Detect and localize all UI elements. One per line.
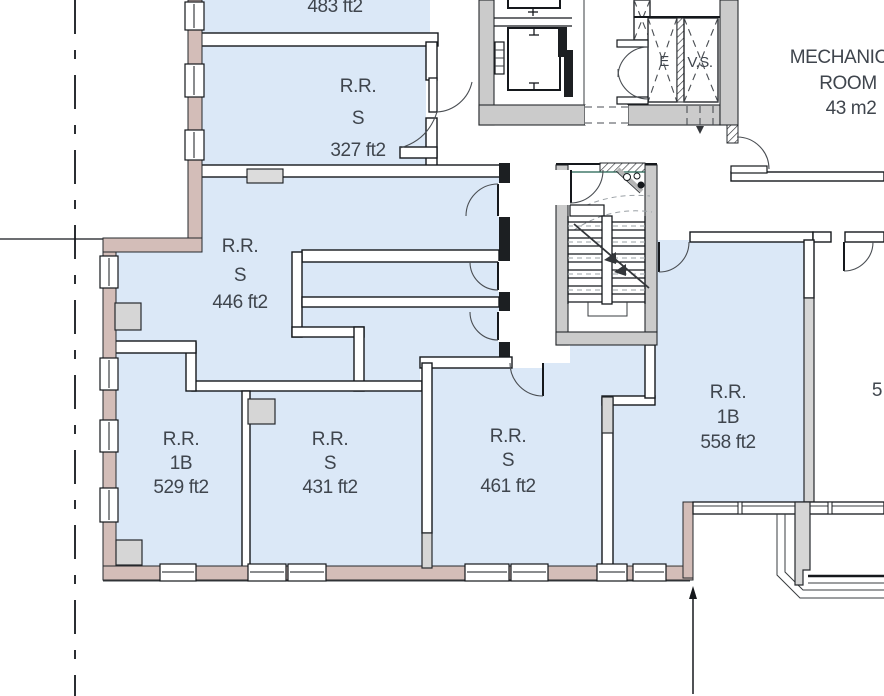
electrical-shaft-label: E: [659, 53, 669, 70]
column: [602, 397, 613, 433]
room-431-area-label: 431 ft2: [302, 477, 357, 498]
room-529-name: R.R.: [163, 429, 199, 450]
vent-shaft-label: V.S.: [687, 54, 712, 71]
room-558-name: R.R.: [710, 382, 746, 403]
fixture-icon: [638, 182, 645, 189]
window: [185, 130, 204, 160]
room-327-type: S: [352, 108, 364, 129]
room-461-area-label: 461 ft2: [480, 476, 535, 497]
room-558-type: 1B: [717, 407, 739, 428]
window: [597, 564, 627, 581]
room-558-area-label: 558 ft2: [700, 432, 755, 453]
elevator-car: [508, 28, 560, 90]
column: [116, 540, 142, 565]
window: [633, 564, 666, 581]
room-483-label: 483 ft2: [307, 0, 362, 17]
column: [422, 533, 432, 568]
property-line: [0, 0, 104, 696]
room-431-type: S: [324, 453, 336, 474]
column: [115, 303, 141, 330]
mechanical-room-area: 43 m2: [826, 98, 877, 119]
balcony: [693, 502, 884, 598]
balcony-column: [795, 502, 810, 585]
elevator-bank: [494, 0, 584, 105]
wall-column: [804, 298, 814, 502]
lobby-door-arc: [618, 69, 648, 99]
window: [100, 488, 118, 522]
window: [465, 564, 509, 581]
room-461-name: R.R.: [490, 426, 526, 447]
fixture-icon: [624, 174, 631, 181]
door-jamb-hatch: [727, 125, 738, 143]
room-461-type: S: [502, 450, 514, 471]
room-327-name: R.R.: [340, 76, 376, 97]
window: [185, 2, 204, 30]
service-shafts: [617, 0, 720, 104]
wall-fixture: [247, 169, 283, 183]
room-446-name: R.R.: [222, 236, 258, 257]
door-leaf: [429, 78, 437, 112]
room-431-name: R.R.: [312, 429, 348, 450]
window: [185, 64, 204, 97]
window: [100, 358, 118, 390]
annotation-arrow-icon: [689, 586, 697, 694]
room-327-area: [200, 46, 426, 165]
mechanical-room-name2: ROOM: [819, 73, 877, 94]
window: [100, 256, 118, 288]
door-leaf: [731, 166, 767, 173]
clipped-right-label: 5: [872, 380, 882, 401]
window: [248, 564, 286, 581]
room-431-entry-area: [302, 262, 499, 297]
duct-arrow-icon: [696, 126, 704, 134]
window: [511, 564, 548, 581]
window: [100, 420, 118, 452]
window: [160, 564, 196, 581]
room-446-area-label: 446 ft2: [212, 292, 267, 313]
mechanical-room-name: MECHANICAL: [790, 47, 884, 68]
lobby-door-arc: [618, 47, 648, 77]
column: [248, 399, 275, 424]
room-529-area-label: 529 ft2: [153, 477, 208, 498]
fixture-icon: [634, 173, 640, 179]
elevator-car: [508, 0, 560, 8]
floor-plan-drawing: 483 ft2 R.R. S 327 ft2 R.R. S 446 ft2 R.…: [0, 0, 884, 696]
room-327-area-label: 327 ft2: [330, 140, 385, 161]
window: [288, 564, 326, 581]
room-529-type: 1B: [170, 453, 192, 474]
room-446-type: S: [234, 265, 246, 286]
floor-plan-canvas: 483 ft2 R.R. S 327 ft2 R.R. S 446 ft2 R.…: [0, 0, 884, 696]
